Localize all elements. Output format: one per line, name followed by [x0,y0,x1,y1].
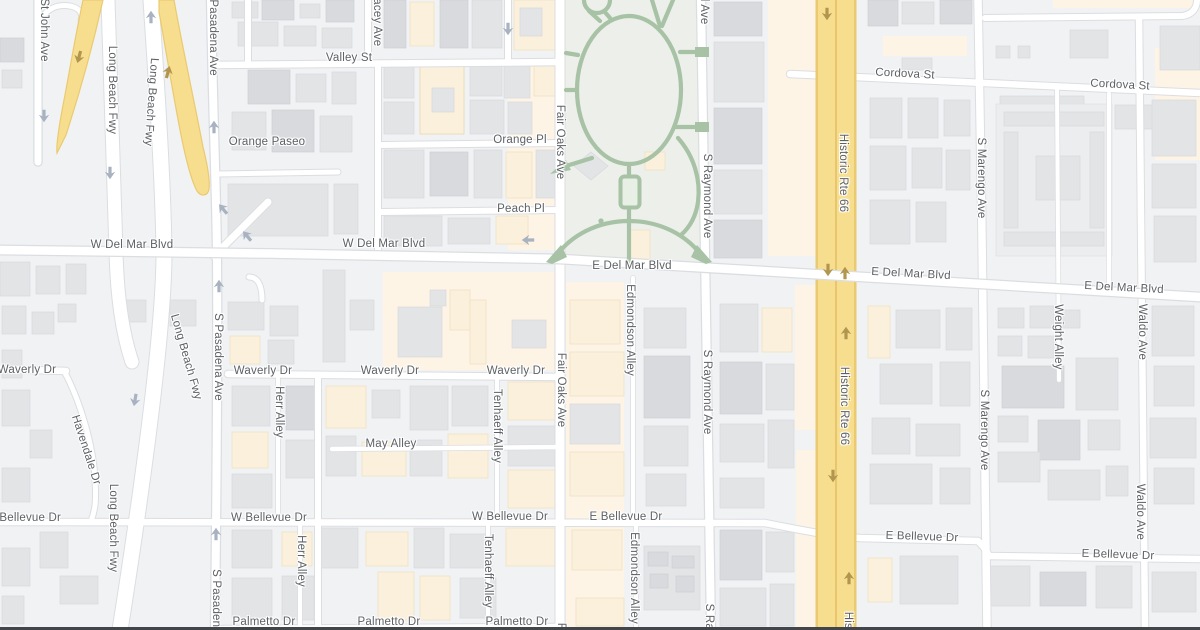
map-graphics [0,0,1200,630]
map-canvas[interactable]: St John AveLong Beach FwyLong Beach FwyS… [0,0,1200,630]
historic-rte-66-divider [835,0,837,630]
